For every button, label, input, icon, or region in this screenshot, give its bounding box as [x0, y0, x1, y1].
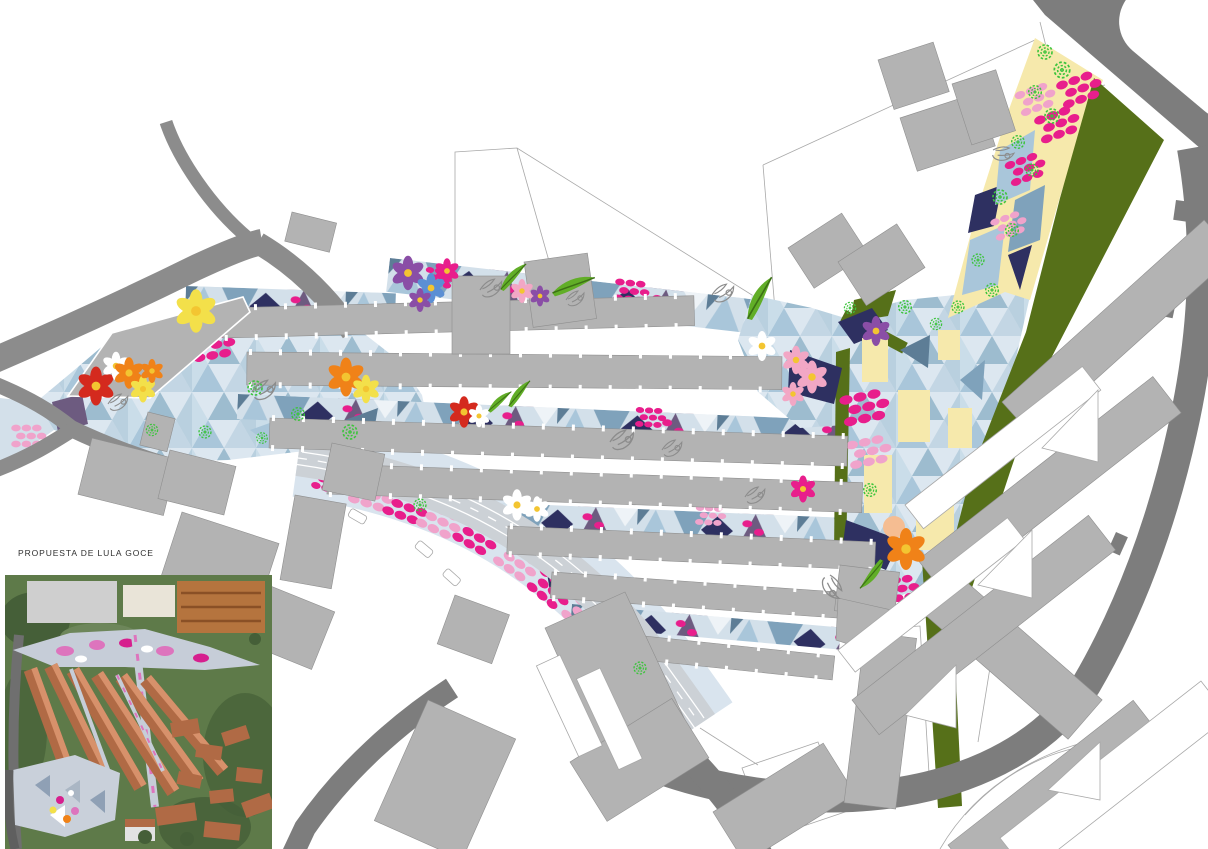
site-plan-svg: [0, 0, 1208, 849]
inset-apartment-block: [27, 581, 117, 623]
inset-photo: [0, 575, 287, 849]
housing-slab: [247, 352, 782, 390]
masterplan-canvas: PROPUESTA DE LULA GOCE: [0, 0, 1208, 849]
inset-caption: PROPUESTA DE LULA GOCE: [18, 548, 154, 558]
